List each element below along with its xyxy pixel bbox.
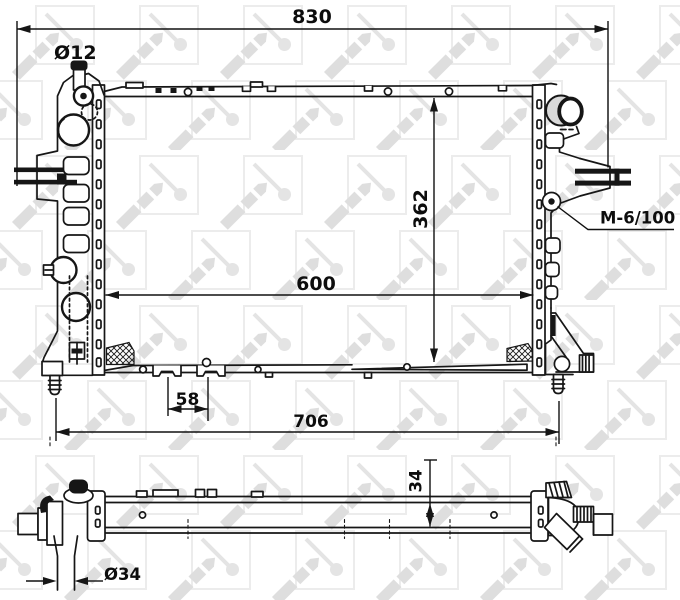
bracket-pin xyxy=(575,169,631,174)
clip xyxy=(137,491,148,497)
header-hole xyxy=(384,88,391,95)
dim-706-label: 706 xyxy=(293,412,329,432)
hose-tab xyxy=(546,133,564,148)
hose-tab xyxy=(546,238,561,253)
bracket-foot xyxy=(42,362,63,376)
radiator-technical-drawing: 830 Ø12 362 600 M-6/100 xyxy=(0,0,680,600)
filler-cap-side xyxy=(69,480,88,494)
hose-tab xyxy=(64,235,90,253)
m6-label: M-6/100 xyxy=(600,209,675,228)
dia-34-label: Ø34 xyxy=(104,565,141,584)
dim-58-label: 58 xyxy=(176,390,200,410)
side-plate-right xyxy=(533,85,546,375)
clip xyxy=(196,490,205,498)
bracket-hole xyxy=(554,356,569,371)
hose-tab xyxy=(64,157,90,175)
drain-boss xyxy=(51,257,77,283)
dim-830-label: 830 xyxy=(292,6,332,28)
hose-tab xyxy=(546,263,560,277)
bracket-pin xyxy=(575,181,631,186)
clip xyxy=(153,490,178,497)
dia-12-label: Ø12 xyxy=(54,42,97,64)
dim-362-label: 362 xyxy=(410,189,432,229)
hose-tab xyxy=(64,185,90,203)
hose-tab xyxy=(64,208,90,226)
clip xyxy=(208,490,217,498)
header-hole xyxy=(184,88,191,95)
side-plate-left xyxy=(93,85,105,375)
hose-tab xyxy=(546,286,558,299)
inlet-pipe-opening xyxy=(559,99,582,125)
dim-34-label: 34 xyxy=(407,470,426,493)
bracket-pin xyxy=(14,180,77,185)
clip xyxy=(252,492,264,498)
dim-600-label: 600 xyxy=(296,273,336,295)
lower-boss xyxy=(62,293,90,321)
end-pipe xyxy=(594,514,613,535)
header-hole xyxy=(445,88,452,95)
side-plate-end-right xyxy=(531,491,548,541)
drawing-canvas: 830 Ø12 362 600 M-6/100 xyxy=(0,0,680,600)
outlet-socket xyxy=(18,514,38,535)
